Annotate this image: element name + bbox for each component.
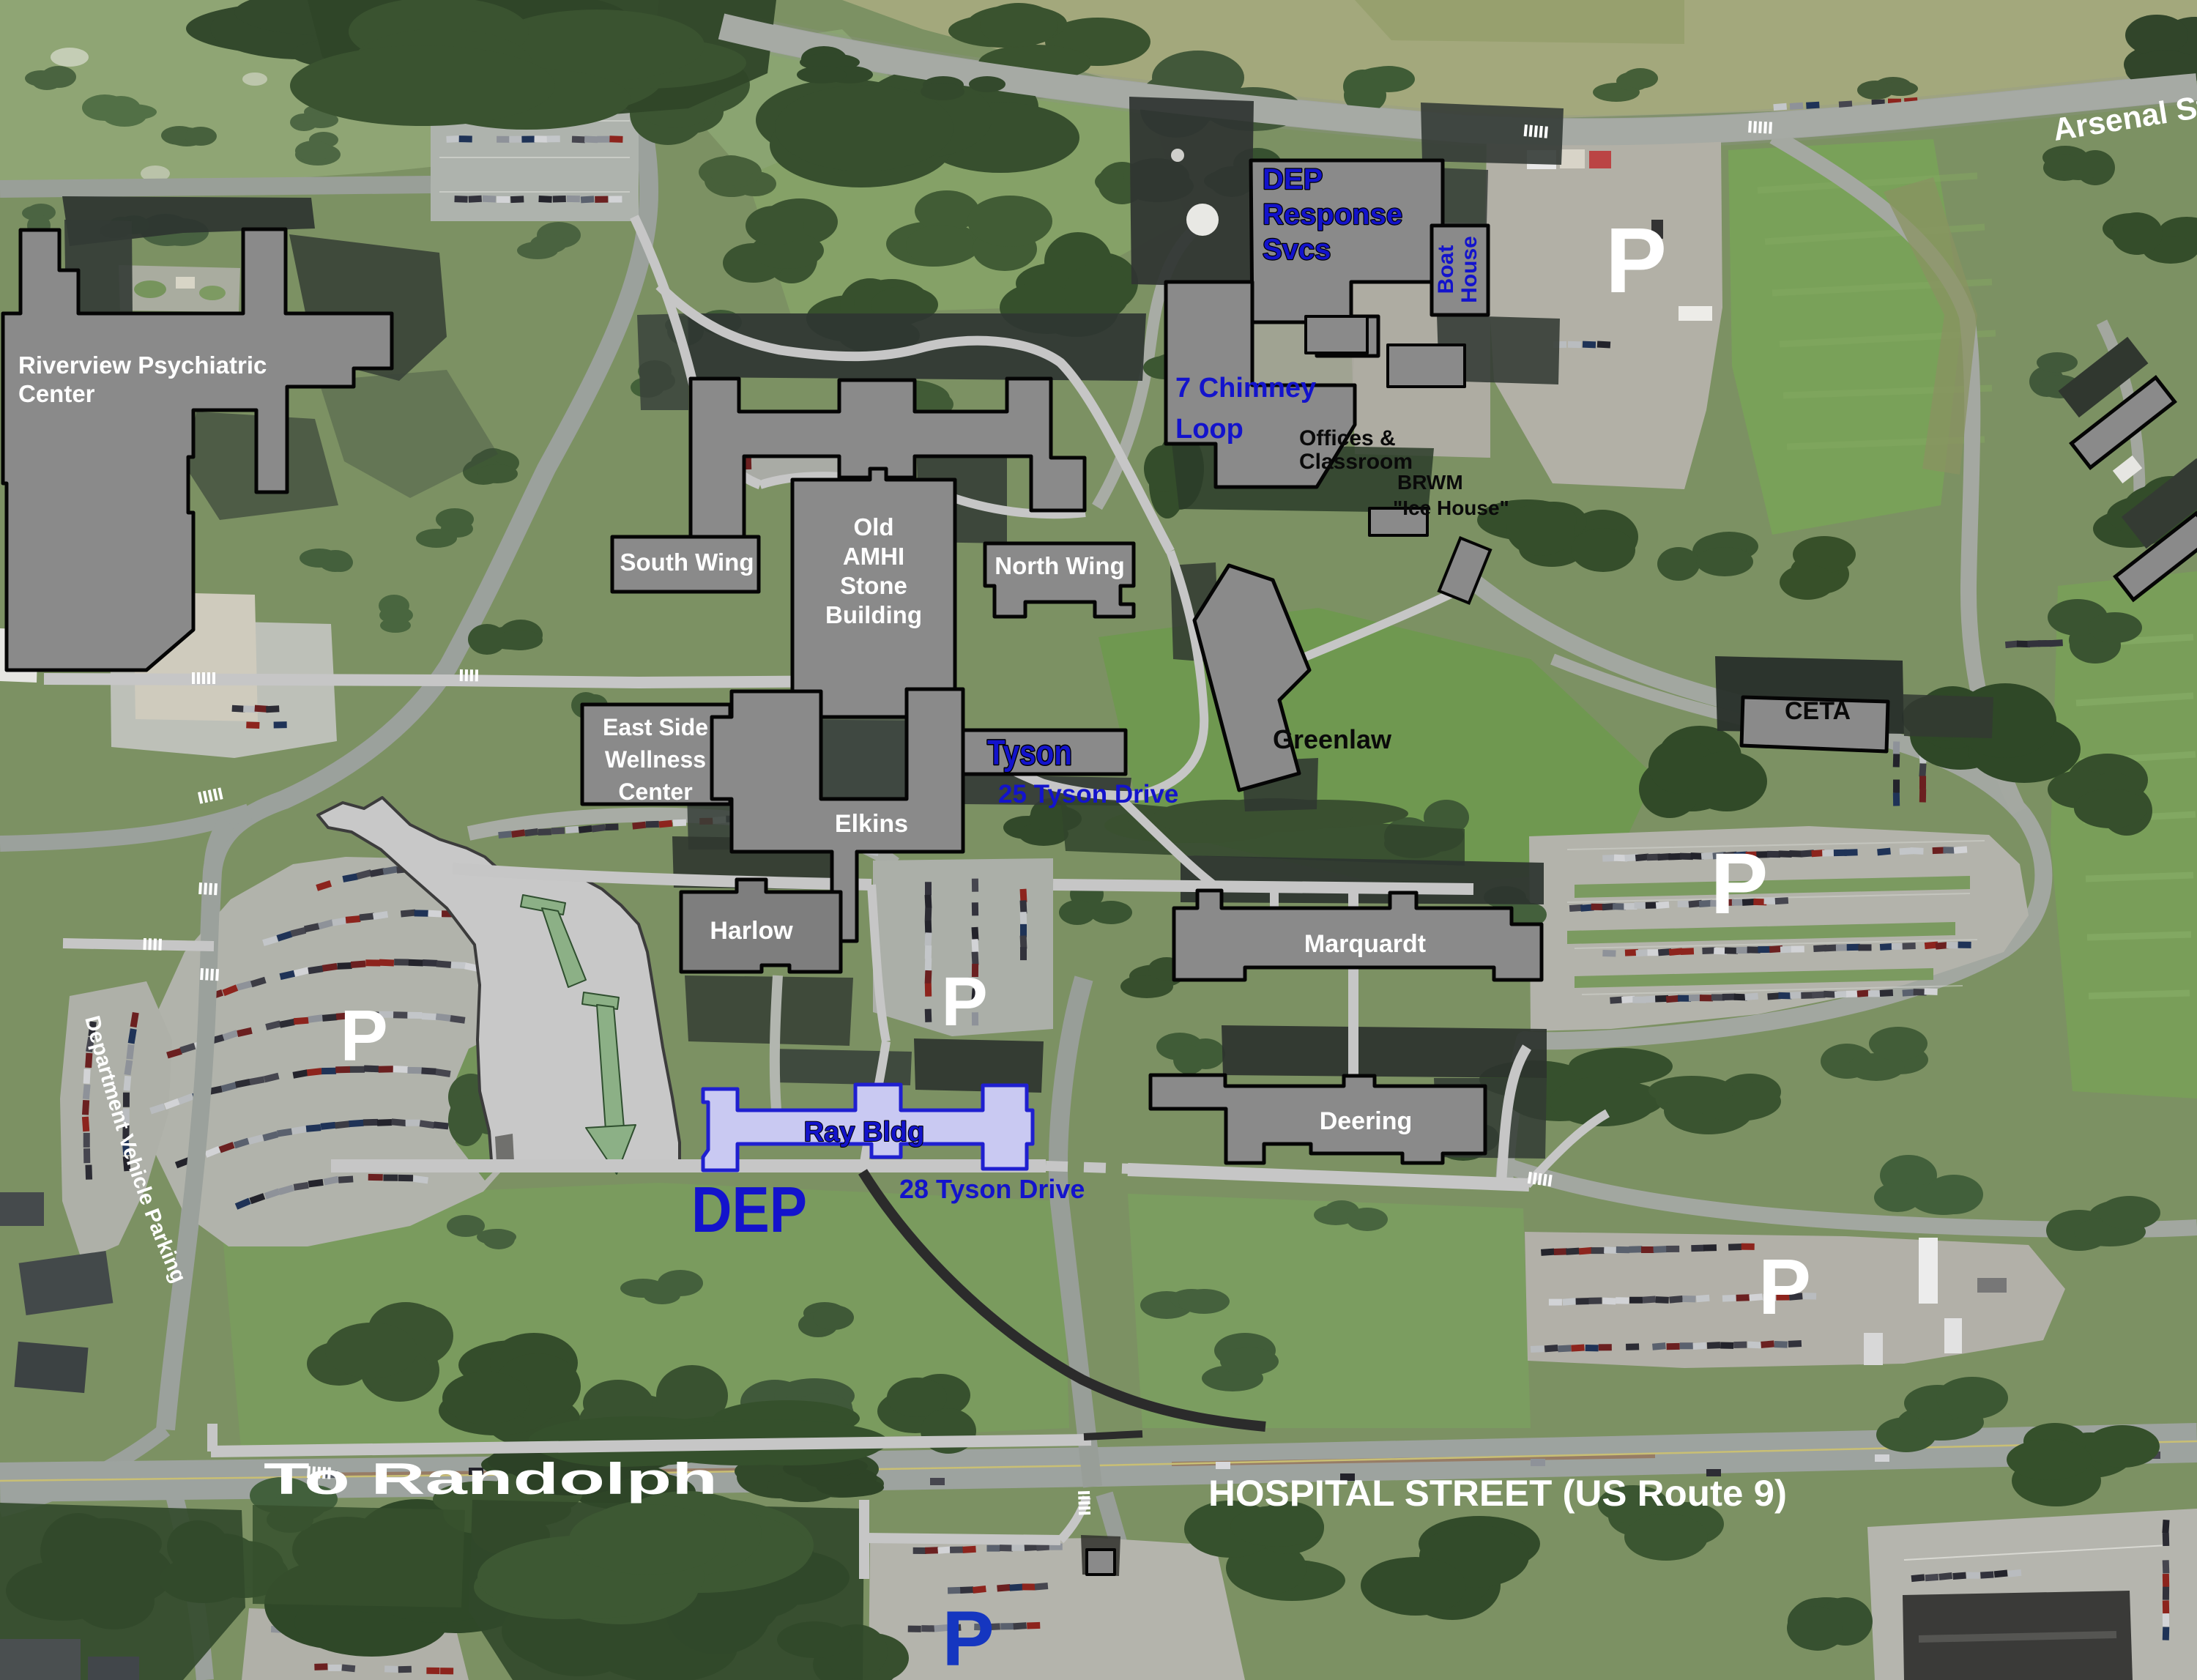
svg-text:Svcs: Svcs: [1263, 234, 1331, 266]
svg-text:25 Tyson Drive: 25 Tyson Drive: [998, 780, 1178, 809]
svg-text:South Wing: South Wing: [620, 549, 754, 576]
svg-text:Ray Bldg: Ray Bldg: [804, 1117, 925, 1148]
svg-text:Response: Response: [1263, 198, 1402, 231]
svg-text:Classroom: Classroom: [1299, 450, 1413, 474]
svg-text:Harlow: Harlow: [710, 917, 793, 945]
svg-text:P: P: [941, 963, 987, 1041]
svg-text:Deering: Deering: [1320, 1107, 1413, 1135]
svg-text:House: House: [1457, 236, 1482, 303]
svg-text:North Wing: North Wing: [995, 552, 1125, 579]
svg-text:Stone: Stone: [840, 572, 907, 599]
svg-text:Center: Center: [618, 778, 692, 805]
svg-text:Greenlaw: Greenlaw: [1273, 724, 1392, 754]
svg-text:East Side: East Side: [603, 714, 708, 740]
svg-text:To Randolph: To Randolph: [264, 1454, 718, 1504]
svg-text:CETA: CETA: [1785, 697, 1851, 725]
svg-text:P: P: [340, 995, 387, 1076]
svg-text:BRWM: BRWM: [1397, 471, 1463, 494]
svg-text:P: P: [942, 1594, 994, 1680]
svg-text:P: P: [1605, 209, 1667, 312]
svg-text:Riverview Psychiatric: Riverview Psychiatric: [18, 352, 267, 379]
svg-text:DEP: DEP: [1263, 163, 1323, 196]
svg-text:Wellness: Wellness: [605, 746, 706, 773]
svg-text:Offices &: Offices &: [1299, 426, 1396, 450]
svg-text:Marquardt: Marquardt: [1304, 930, 1426, 958]
svg-text:Elkins: Elkins: [835, 810, 908, 838]
svg-text:HOSPITAL STREET (US Route 9): HOSPITAL STREET (US Route 9): [1208, 1473, 1787, 1514]
svg-text:DEP: DEP: [691, 1173, 807, 1246]
svg-text:P: P: [1711, 836, 1769, 932]
svg-text:Center: Center: [18, 380, 95, 407]
svg-text:P: P: [1758, 1242, 1811, 1331]
svg-text:Old: Old: [854, 513, 894, 540]
svg-text:Building: Building: [825, 601, 922, 628]
svg-text:"Ice House": "Ice House": [1393, 497, 1509, 519]
svg-text:28 Tyson Drive: 28 Tyson Drive: [899, 1174, 1085, 1204]
svg-text:Loop: Loop: [1175, 414, 1244, 445]
svg-text:Boat: Boat: [1434, 245, 1458, 294]
svg-text:Tyson: Tyson: [987, 734, 1072, 773]
svg-text:7 Chimney: 7 Chimney: [1175, 373, 1316, 404]
svg-text:AMHI: AMHI: [843, 543, 904, 570]
